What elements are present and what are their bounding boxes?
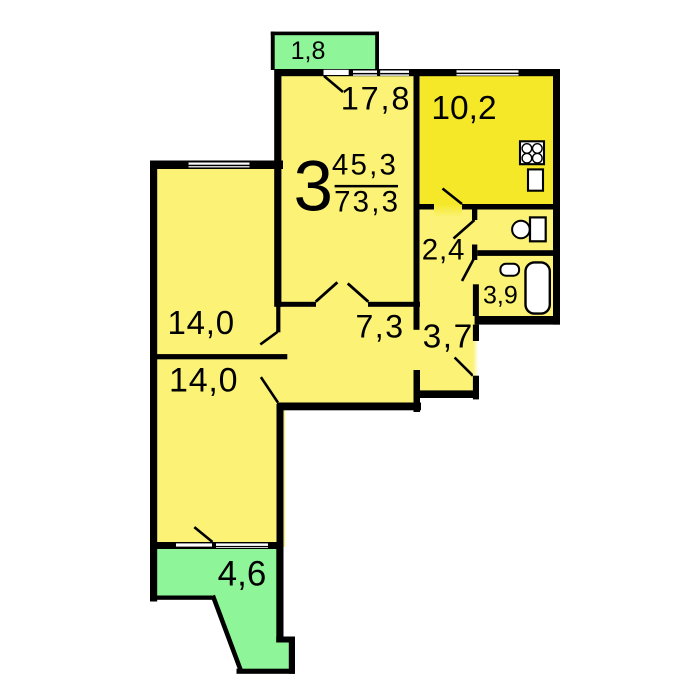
svg-text:1,8: 1,8 [291, 37, 326, 65]
svg-text:73,3: 73,3 [334, 185, 400, 218]
svg-text:45,3: 45,3 [332, 149, 398, 182]
svg-text:3,7: 3,7 [423, 318, 474, 355]
svg-text:3,9: 3,9 [483, 282, 518, 310]
svg-text:4,6: 4,6 [218, 555, 267, 594]
svg-text:3: 3 [293, 148, 333, 227]
svg-text:2,4: 2,4 [422, 233, 465, 266]
svg-text:14,0: 14,0 [167, 304, 234, 341]
svg-text:7,3: 7,3 [356, 308, 405, 344]
svg-text:10,2: 10,2 [431, 90, 496, 127]
svg-text:14,0: 14,0 [169, 362, 238, 400]
svg-text:17,8: 17,8 [341, 81, 411, 117]
